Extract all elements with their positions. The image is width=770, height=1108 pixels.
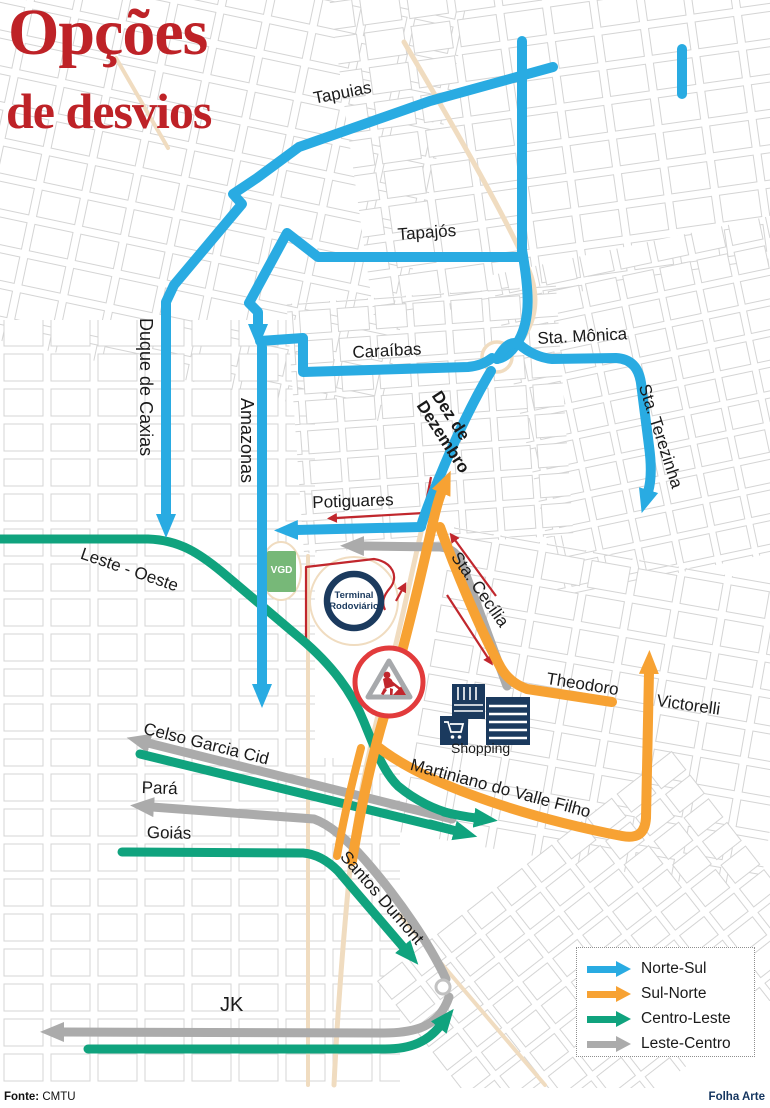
legend: Norte-Sul Sul-Norte Centro-Leste Leste-C… — [576, 947, 755, 1057]
footer-source: Fonte: CMTU — [4, 1091, 76, 1103]
street-label-caraibas: Caraíbas — [352, 340, 422, 361]
legend-arrow-orange-icon — [587, 986, 633, 1002]
construction-sign-icon — [355, 648, 423, 716]
street-label-potiguares: Potiguares — [312, 491, 394, 512]
street-label-jk: JK — [220, 995, 243, 1016]
legend-row-sul-norte: Sul-Norte — [587, 981, 754, 1006]
legend-row-norte-sul: Norte-Sul — [587, 956, 754, 981]
legend-arrow-gray-icon — [587, 1036, 633, 1052]
detour-map-infographic: Opções de desvios Tapuias Tapajós Caraíb… — [0, 0, 770, 1108]
route-green-leste-oeste-tip — [444, 812, 476, 818]
terminal-label-line2: Rodoviário — [326, 601, 382, 612]
street-label-para: Pará — [141, 779, 178, 798]
street-label-goias: Goiás — [147, 824, 192, 843]
page-title-line1: Opções — [8, 0, 207, 66]
terminal-rodoviario-label: Terminal Rodoviário — [326, 590, 382, 613]
legend-label-centro-leste: Centro-Leste — [641, 1010, 731, 1028]
footer-source-label: Fonte: — [4, 1091, 39, 1103]
legend-row-centro-leste: Centro-Leste — [587, 1006, 754, 1031]
street-label-amazonas: Amazonas — [237, 398, 256, 483]
jk-roundabout — [436, 980, 450, 994]
legend-arrow-green-icon — [587, 1011, 633, 1027]
legend-label-leste-centro: Leste-Centro — [641, 1035, 731, 1053]
page-title-line2: de desvios — [6, 86, 211, 136]
vgd-label: VGD — [267, 565, 296, 576]
legend-label-norte-sul: Norte-Sul — [641, 960, 706, 978]
street-label-duque-de-caxias: Duque de Caxias — [136, 318, 155, 456]
legend-label-sul-norte: Sul-Norte — [641, 985, 706, 1003]
terminal-label-line1: Terminal — [326, 590, 382, 601]
shopping-label: Shopping — [451, 740, 510, 756]
legend-row-leste-centro: Leste-Centro — [587, 1031, 754, 1056]
footer-source-value: CMTU — [42, 1091, 75, 1103]
legend-arrow-blue-icon — [587, 961, 633, 977]
footer-credit: Folha Arte — [709, 1091, 765, 1103]
